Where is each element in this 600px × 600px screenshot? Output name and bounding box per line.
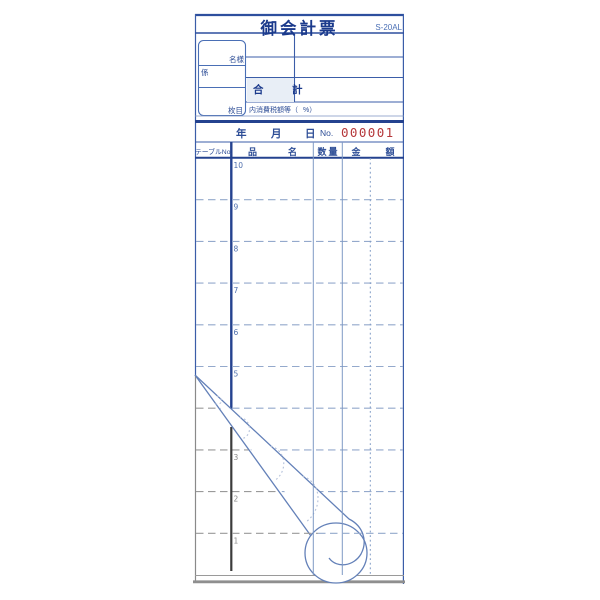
row-number: 3 <box>234 453 239 462</box>
col-header-item: 品 名 <box>232 145 313 158</box>
curl-roll-loop <box>305 523 367 583</box>
col-header-qty: 数量 <box>313 145 342 158</box>
row-number: 10 <box>234 161 244 170</box>
tax-note-suffix: %） <box>303 105 316 115</box>
row-number: 5 <box>234 370 239 379</box>
staff-label: 係 <box>201 67 209 78</box>
col-header-amount: 金 額 <box>342 145 404 158</box>
tax-note-prefix: 内消費税額等（ <box>249 105 298 115</box>
product-image-stage: 10 9 8 7 6 5 4 3 2 1 <box>0 0 600 600</box>
row-number: 8 <box>234 244 239 253</box>
pages-label: 枚目 <box>198 105 243 116</box>
day-label: 日 <box>305 126 316 141</box>
row-number: 9 <box>234 203 239 212</box>
row-number: 1 <box>234 536 239 545</box>
model-number: S-20AL <box>330 23 402 32</box>
row-number: 7 <box>234 286 239 295</box>
year-label: 年 <box>236 126 247 141</box>
serial-number: 000001 <box>341 125 395 140</box>
row-number: 6 <box>234 328 239 337</box>
month-label: 月 <box>271 126 282 141</box>
no-label: No. <box>320 128 333 138</box>
row-number: 2 <box>234 495 239 504</box>
col-header-table-no: テーブルNo. <box>195 146 231 156</box>
guests-label: 名様 <box>198 54 244 65</box>
total-label-cell: 合 計 <box>247 78 294 102</box>
